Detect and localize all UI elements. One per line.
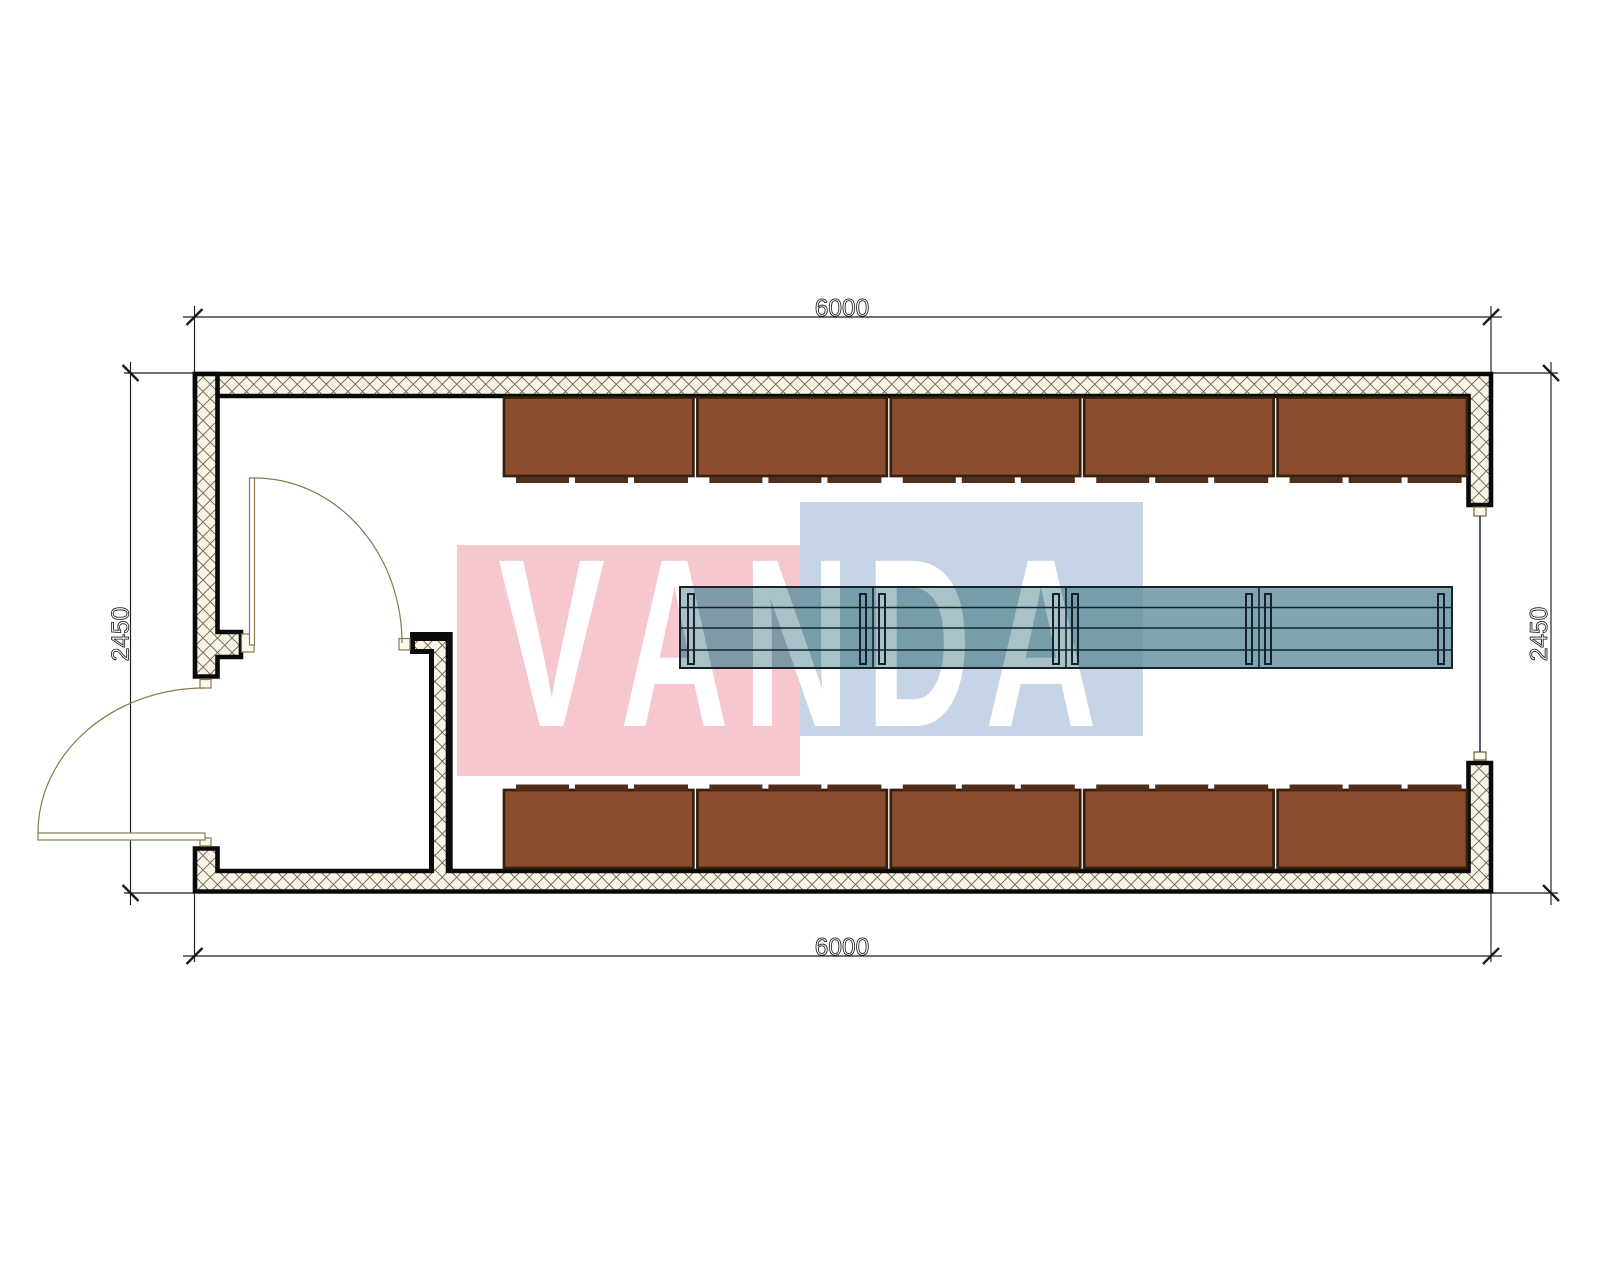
svg-text:2450: 2450 [1526, 607, 1553, 662]
svg-text:N: N [743, 509, 850, 777]
svg-text:A: A [985, 509, 1097, 777]
svg-text:6000: 6000 [815, 934, 870, 961]
svg-text:V: V [498, 509, 605, 777]
svg-text:6000: 6000 [815, 295, 870, 322]
svg-text:D: D [866, 509, 971, 777]
svg-text:2450: 2450 [108, 607, 135, 662]
svg-text:A: A [620, 509, 729, 777]
